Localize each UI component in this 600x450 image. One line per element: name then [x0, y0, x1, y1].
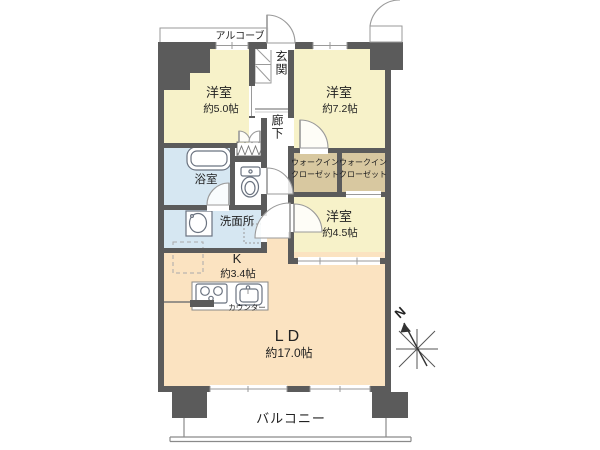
floor-plan: アルコーブ 玄関 廊下 洋室 約5.0帖 洋室 約7.2帖 洋室 約4.5帖 ウ…: [0, 0, 600, 450]
wall-left: [158, 42, 164, 392]
wall: [158, 248, 267, 253]
entrance-label: 玄関: [274, 49, 288, 76]
bedroom2-label: 洋室: [326, 85, 352, 100]
balcony-pillar: [172, 392, 207, 418]
bathtub-icon: [187, 147, 231, 170]
wic-right-door: [346, 191, 381, 198]
wall: [234, 156, 267, 162]
toilet-doorway: [261, 168, 267, 194]
corridor-label: 廊下: [270, 113, 284, 140]
bedroom3-sliding-door: [298, 257, 380, 265]
living-dining-label: LD: [275, 328, 303, 345]
compass-north-icon: N: [392, 304, 438, 369]
shoe-cabinet: [255, 46, 271, 83]
counter-edge: [190, 300, 214, 307]
kitchen-sink-icon: [236, 284, 262, 305]
wall-right: [385, 70, 391, 392]
compass-arrowhead: [401, 323, 412, 333]
storage-closet: [237, 142, 261, 156]
entrance-door: [267, 15, 295, 43]
window: [210, 385, 287, 393]
wic-right-label2: クローゼット: [339, 169, 387, 179]
wall-corner-block: [370, 42, 403, 70]
living-dining-size: 約17.0帖: [265, 345, 312, 360]
washroom-label: 洗面所: [220, 215, 255, 228]
bedroom1-label: 洋室: [206, 85, 232, 100]
bathroom-label: 浴室: [195, 172, 218, 186]
compass-n-label: N: [392, 304, 409, 321]
wall: [261, 118, 267, 210]
kitchen-size: 約3.4帖: [220, 267, 256, 280]
alcove-label: アルコーブ: [215, 29, 264, 42]
window: [216, 41, 248, 50]
balcony-pillar: [372, 392, 408, 418]
wic-left-label2: クローゼット: [291, 169, 339, 179]
ldk-floor: [163, 252, 386, 387]
balcony-label: バルコニー: [256, 411, 326, 426]
wall: [158, 143, 237, 148]
window: [313, 41, 347, 50]
wic-right-label1: ウォークイン: [339, 158, 387, 167]
bedroom2-size: 約7.2帖: [322, 102, 358, 115]
exterior-door: [370, 0, 402, 42]
toilet-icon: [241, 167, 260, 197]
kitchen-label: K: [233, 251, 242, 266]
bedroom1-size: 約5.0帖: [203, 102, 239, 115]
wall-corner-block: [164, 73, 190, 90]
bedroom3-label: 洋室: [326, 209, 352, 224]
washbasin-icon: [186, 211, 212, 236]
counter-label: カウンター: [228, 303, 266, 312]
bedroom3-size: 約4.5帖: [322, 226, 358, 239]
floor-plan-page: アルコーブ 玄関 廊下 洋室 約5.0帖 洋室 約7.2帖 洋室 約4.5帖 ウ…: [0, 0, 600, 450]
bedroom1-sliding-door: [249, 86, 255, 116]
window: [310, 385, 370, 393]
doorway: [288, 118, 294, 146]
wic-left-label1: ウォークイン: [291, 158, 339, 167]
wall-corner-block: [164, 42, 210, 73]
